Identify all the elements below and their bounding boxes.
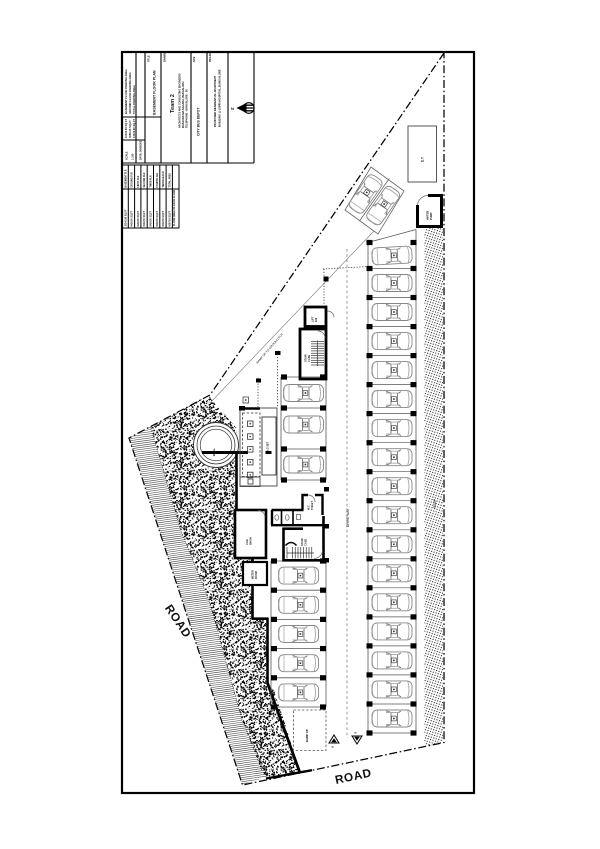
svg-text:CITY BUS DEPOT: CITY BUS DEPOT [197,107,201,136]
svg-text:LIFT: LIFT [311,316,315,322]
svg-text:N: N [231,106,234,111]
svg-text:TERRACE FLR: TERRACE FLR [162,171,165,188]
svg-text:RAMP UP: RAMP UP [305,729,309,742]
svg-text:60973.6 SQ.FT: 60973.6 SQ.FT [169,210,171,226]
svg-text:FLOOR AREA OF EACH FLOOR: FLOOR AREA OF EACH FLOOR [173,190,176,226]
svg-text:8439.50 SQ.FT: 8439.50 SQ.FT [131,210,134,226]
svg-text:BASEMENT FLOOR PARKING AREA: BASEMENT FLOOR PARKING AREA [124,69,128,114]
svg-text:1:100: 1:100 [132,153,135,160]
svg-text:THIRD FLR: THIRD FLR [151,175,153,187]
svg-text:TELEPHONE - BANGALORE - 56: TELEPHONE - BANGALORE - 56 [186,89,189,128]
svg-text:13406.90 SQ.FT: 13406.90 SQ.FT [132,118,136,138]
svg-text:DRIVE WAY: DRIVE WAY [346,508,350,527]
svg-text:SITE: SITE [193,56,196,62]
svg-text:WATER: WATER [426,211,430,220]
svg-text:8439.50 SQ.FT: 8439.50 SQ.FT [143,210,146,226]
svg-text:CASE: CASE [307,355,311,362]
svg-text:STAIR: STAIR [300,538,304,546]
svg-text:BASEMENT FLOOR PLAN: BASEMENT FLOOR PLAN [153,70,157,115]
svg-text:8439.50 SQ.FT: 8439.50 SQ.FT [162,210,165,226]
svg-text:BUILDING @ (OPP) HOSPITAL, BAN: BUILDING @ (OPP) HOSPITAL, BANGALORE [218,69,222,127]
svg-text:FOURTH FLR: FOURTH FLR [157,172,159,187]
svg-text:STAIR: STAIR [304,354,308,362]
svg-text:SCALE: SCALE [126,151,129,160]
svg-text:GROUND FLR: GROUND FLR [132,172,134,188]
svg-text:CASE: CASE [304,539,308,546]
svg-text:DRAWN: DRAWN [164,53,167,62]
svg-text:8439.50 SQ.FT: 8439.50 SQ.FT [156,210,159,226]
svg-text:TITLE: TITLE [148,55,151,62]
svg-text:PROPOSED RESIDENTIAL APARTMENT: PROPOSED RESIDENTIAL APARTMENT [213,75,217,127]
svg-text:8439.50 SQ.FT: 8439.50 SQ.FT [150,210,153,226]
svg-text:10340.65 SQ.FT: 10340.65 SQ.FT [124,209,127,227]
svg-text:TOTAL PARKING AREA: TOTAL PARKING AREA [132,85,136,114]
svg-text:BASEMENT FLR: BASEMENT FLR [124,169,127,187]
svg-text:CAR: CAR [245,539,249,545]
svg-text:D.G SET: D.G SET [266,441,270,452]
svg-text:PROJECT: PROJECT [209,50,212,62]
svg-text:Team 2: Team 2 [170,94,176,113]
svg-text:DATE: 06/06/2023: DATE: 06/06/2023 [140,139,143,160]
svg-text:10340.65 SQ.FT: 10340.65 SQ.FT [124,118,128,138]
svg-text:ROOM: ROOM [255,571,258,579]
svg-text:FIRST FLR: FIRST FLR [138,175,140,187]
svg-text:WASH: WASH [249,537,253,545]
svg-text:PUMP: PUMP [429,212,433,220]
svg-text:6X6: 6X6 [315,317,318,322]
svg-text:3066.25 SQ.FT: 3066.25 SQ.FT [128,120,132,138]
svg-text:TOILET: TOILET [311,501,314,510]
svg-text:TOTAL AREA: TOTAL AREA [168,173,171,188]
svg-text:RAMP: RAMP [433,499,437,508]
svg-text:8439.50 SQ.FT: 8439.50 SQ.FT [137,210,140,226]
svg-text:SECOND FLR: SECOND FLR [144,172,146,187]
svg-text:E.T: E.T [421,157,425,162]
svg-text:GROUND FLOOR PARKING AREA: GROUND FLOOR PARKING AREA [128,72,132,114]
